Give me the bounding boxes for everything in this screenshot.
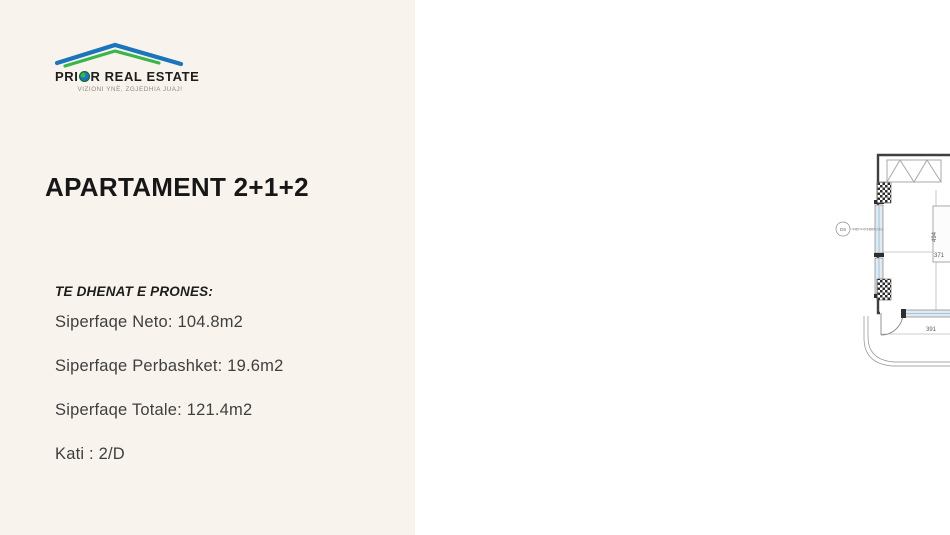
brand-logo: PRIR REAL ESTATE VIZIONI YNË, ZGJEDHIA J… <box>55 42 205 93</box>
detail-floor: Kati : 2/D <box>55 445 284 464</box>
detail-net-area: Siperfaqe Neto: 104.8m2 <box>55 313 284 332</box>
detail-total-area: Siperfaqe Totale: 121.4m2 <box>55 401 284 420</box>
dimension-label: 371 <box>934 253 945 259</box>
door-tag-id: D6 <box>840 227 846 233</box>
roof-icon <box>55 42 185 68</box>
brand-name-left: PRI <box>55 69 78 84</box>
info-panel: PRIR REAL ESTATE VIZIONI YNË, ZGJEDHIA J… <box>0 0 415 535</box>
page-title: APARTAMENT 2+1+2 <box>45 172 309 203</box>
property-details: TE DHENAT E PRONES: Siperfaqe Neto: 104.… <box>55 284 284 489</box>
floor-plan: 9818069449437126019132139038751655645221… <box>415 0 950 535</box>
details-heading: TE DHENAT E PRONES: <box>55 284 284 299</box>
dimension-label: 391 <box>926 327 937 333</box>
globe-icon <box>79 71 90 82</box>
door-tag-spec: HD = 0 180X240 <box>853 227 883 232</box>
brand-tagline: VIZIONI YNË, ZGJEDHIA JUAJ! <box>55 86 205 93</box>
floor-plan-panel: 9818069449437126019132139038751655645221… <box>415 0 950 535</box>
brand-name-right: R REAL ESTATE <box>90 69 199 84</box>
detail-common-area: Siperfaqe Perbashket: 19.6m2 <box>55 357 284 376</box>
bed-1 <box>933 192 950 262</box>
balcony-rail <box>864 316 950 366</box>
dimension-label: 494 <box>932 231 938 242</box>
brand-name: PRIR REAL ESTATE <box>55 69 205 84</box>
wardrobe <box>887 160 941 182</box>
